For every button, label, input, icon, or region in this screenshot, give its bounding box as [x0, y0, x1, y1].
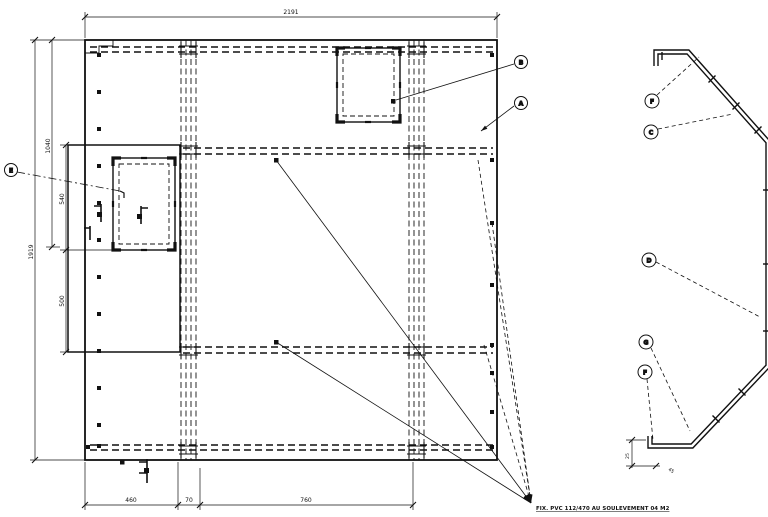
profile-band-outer [650, 52, 768, 446]
hook-dimensions [626, 437, 660, 469]
fixing-note: FIX. PVC 112/470 AU SOULEVEMENT 04 M2 [536, 506, 670, 512]
plan-dimensions [30, 12, 500, 510]
leader-fan [276, 160, 533, 503]
panel-corner-notch [85, 40, 113, 53]
callout-a-label: A [519, 101, 524, 108]
dim-subpanel-upper: 540 [59, 193, 66, 205]
plan-dimension-labels: 2191 1919 1040 540 500 460 70 760 [28, 9, 312, 504]
callout-e-label: E [9, 168, 13, 175]
dim-left-outer: 1919 [28, 244, 35, 259]
fastener-dots [86, 53, 494, 465]
leader-fan-arrows [523, 494, 533, 503]
dim-bottom-seam: 70 [185, 497, 193, 504]
cutout-left [113, 158, 175, 250]
drawing-canvas: 2191 1919 1040 540 500 460 70 760 E B A [0, 0, 768, 517]
dim-hook-height: 25 [625, 453, 631, 459]
section-flag-marks [84, 204, 148, 483]
dim-left-inner: 1040 [45, 138, 52, 153]
dim-hook-offset: 45 [667, 467, 675, 475]
cutout-top [337, 48, 400, 122]
callout-f-top-label: F [650, 99, 654, 106]
seam-column-right [409, 40, 424, 460]
section-flag-dots [97, 212, 149, 473]
profile-joint-ticks [662, 52, 768, 423]
callout-f-bottom-label: F [643, 370, 647, 377]
dim-bottom-left: 460 [125, 497, 137, 504]
seam-connectors [179, 42, 426, 458]
drawing-sheet: 2191 1919 1040 540 500 460 70 760 E B A [0, 0, 768, 517]
callout-g-label: G [644, 340, 649, 347]
callout-b-label: B [519, 60, 524, 67]
dim-bottom-mid: 760 [300, 497, 312, 504]
dim-top-width: 2191 [283, 9, 298, 16]
section-view: F C D G F 25 45 [625, 52, 768, 475]
callout-c-label: C [649, 130, 654, 137]
plan-callouts: E B A [5, 56, 528, 199]
callout-d-label: D [647, 258, 652, 265]
seam-column-left [181, 40, 196, 460]
dim-subpanel-lower: 500 [59, 295, 66, 307]
panel-dashed-bands [90, 47, 493, 450]
plan-view [68, 40, 533, 503]
